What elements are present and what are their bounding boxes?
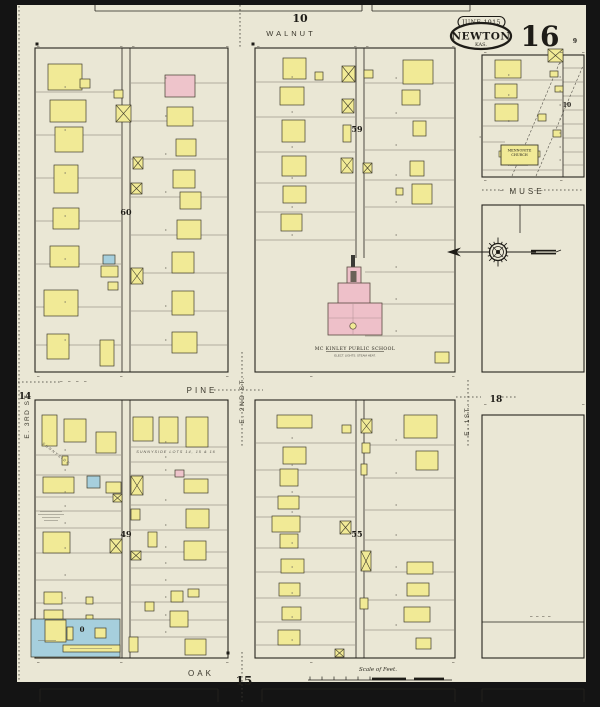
lot-number-mark — [165, 546, 166, 548]
building — [272, 516, 300, 532]
lot-number-mark — [396, 234, 397, 236]
lot-number-mark — [292, 234, 293, 236]
lot-number-mark — [560, 62, 561, 64]
dimension-tick — [68, 381, 71, 382]
lot-number-mark — [65, 491, 66, 493]
dimension-tick — [500, 190, 503, 191]
lot-number-mark — [292, 146, 293, 148]
dimension-tick — [257, 46, 260, 47]
lot-number-mark — [396, 594, 397, 596]
lot-number-mark — [560, 76, 561, 78]
building — [361, 464, 367, 475]
building — [413, 121, 426, 136]
building — [131, 509, 140, 520]
block-number: 9 — [573, 38, 577, 45]
lot-number-mark — [165, 456, 166, 458]
building — [108, 282, 118, 290]
building — [404, 415, 437, 438]
school-upper-wing — [338, 283, 370, 305]
lot-number-mark — [65, 339, 66, 341]
dimension-tick — [120, 46, 123, 47]
building — [282, 607, 301, 620]
building — [180, 192, 201, 209]
building — [101, 266, 118, 277]
street-pine: PINE — [187, 386, 218, 395]
building — [435, 352, 449, 363]
dimension-tick — [120, 376, 123, 377]
lot-number-mark — [165, 562, 166, 564]
lot-number-mark — [65, 301, 66, 303]
block-number: 55 — [351, 529, 362, 539]
lot-number-mark — [508, 120, 509, 122]
lot-number-mark — [165, 77, 166, 79]
lot-number-mark — [292, 111, 293, 113]
lot-number-mark — [396, 534, 397, 536]
building — [277, 415, 312, 428]
lot-number-mark — [480, 136, 481, 138]
lot-number-mark — [292, 616, 293, 618]
building — [402, 90, 420, 105]
building — [106, 482, 121, 493]
building — [396, 188, 403, 195]
dimension-tick — [310, 376, 313, 377]
building — [145, 602, 154, 611]
lot-number-mark — [165, 191, 166, 193]
building — [283, 447, 306, 464]
building — [53, 208, 79, 229]
building — [495, 84, 517, 98]
building — [362, 443, 370, 453]
street-walnut: WALNUT — [266, 29, 315, 38]
building — [407, 583, 429, 596]
dimension-tick — [484, 52, 487, 53]
lot-number-mark — [560, 146, 561, 148]
lot-number-mark — [165, 469, 166, 471]
dimension-tick — [84, 381, 87, 382]
dimension-tick — [452, 662, 455, 663]
building — [283, 58, 306, 79]
block-number: 10 — [563, 102, 571, 109]
lot-number-mark — [165, 115, 166, 117]
illegible-text-line — [70, 648, 112, 649]
lot-number-mark — [508, 94, 509, 96]
building — [282, 120, 305, 142]
dimension-tick — [60, 381, 63, 382]
lot-number-mark — [65, 129, 66, 131]
dimension-tick — [366, 46, 369, 47]
building — [280, 469, 298, 486]
church-label-2: CHURCH — [511, 153, 528, 157]
building — [43, 532, 70, 553]
building — [44, 592, 62, 604]
lot-number-mark — [396, 439, 397, 441]
lot-number-mark — [292, 592, 293, 594]
building — [50, 100, 86, 122]
lot-number-mark — [292, 206, 293, 208]
lot-number-mark — [396, 77, 397, 79]
building — [342, 425, 351, 433]
illegible-text-line — [38, 640, 56, 641]
street-e-2nd: E. 2ND ST. — [239, 376, 246, 423]
building — [407, 562, 433, 574]
building — [100, 340, 114, 366]
building — [167, 107, 193, 126]
street-oak: OAK — [188, 669, 214, 678]
lot-number-mark — [396, 174, 397, 176]
lot-number-mark — [165, 614, 166, 616]
lot-number-mark — [560, 159, 561, 161]
city-name: NEWTON — [452, 31, 511, 43]
lot-number-mark — [65, 215, 66, 217]
lot-number-mark — [165, 267, 166, 269]
lot-number-mark — [65, 505, 66, 507]
lot-number-mark — [396, 298, 397, 300]
building — [50, 246, 79, 267]
building — [172, 291, 194, 315]
addition-label: SUNNYSIDE LOTS 14, 15 & 16 — [136, 450, 216, 454]
building — [133, 417, 153, 441]
building — [96, 432, 116, 453]
lot-number-mark — [292, 76, 293, 78]
state-name: KAS. — [475, 42, 487, 48]
church-label-1: MENNONITE — [508, 149, 532, 153]
lot-number-mark — [65, 574, 66, 576]
building — [165, 75, 195, 97]
lot-number-mark — [396, 266, 397, 268]
building — [55, 127, 83, 152]
building — [184, 479, 208, 493]
building — [281, 214, 302, 231]
lot-number-mark — [396, 330, 397, 332]
lot-number-mark — [65, 258, 66, 260]
mennonite-church: MENNONITE CHURCH — [499, 145, 540, 165]
survey-dot — [252, 43, 255, 46]
dimension-tick — [37, 662, 40, 663]
dimension-tick — [484, 180, 487, 181]
building — [282, 156, 306, 176]
building — [278, 630, 300, 645]
lot-number-mark — [292, 437, 293, 439]
lot-number-mark — [292, 639, 293, 641]
lot-number-mark — [292, 491, 293, 493]
building — [177, 220, 201, 239]
survey-dot — [227, 652, 230, 655]
lot-number-mark — [165, 153, 166, 155]
lot-number-mark — [165, 305, 166, 307]
building — [550, 71, 558, 77]
building — [416, 638, 431, 649]
building — [148, 532, 157, 547]
building — [54, 165, 78, 193]
building — [159, 417, 178, 443]
lot-number-mark — [65, 172, 66, 174]
dimension-tick — [484, 404, 487, 405]
building — [176, 139, 196, 156]
building — [279, 583, 300, 596]
lot-number-mark — [65, 469, 66, 471]
dimension-tick — [452, 376, 455, 377]
building — [95, 628, 106, 638]
building — [412, 184, 432, 204]
dimension-tick — [542, 616, 545, 617]
building — [283, 186, 306, 203]
building — [67, 627, 73, 640]
illegible-text-line — [42, 517, 60, 518]
lot-number-mark — [560, 132, 561, 134]
building — [45, 620, 66, 642]
lot-number-mark — [165, 339, 166, 341]
lot-number-mark — [65, 449, 66, 451]
school-label: MC KINLEY PUBLIC SCHOOL — [315, 346, 395, 352]
block-number: 60 — [120, 207, 132, 217]
lot-number-mark — [396, 201, 397, 203]
dimension-tick — [560, 52, 563, 53]
illegible-text-line — [40, 511, 62, 512]
lot-number-mark — [560, 90, 561, 92]
dimension-tick — [548, 616, 551, 617]
building — [171, 591, 183, 602]
lot-number-mark — [65, 597, 66, 599]
block-number: 0 — [80, 625, 85, 634]
block-number: 18 — [490, 395, 503, 405]
building — [186, 509, 209, 528]
building — [360, 598, 368, 609]
sheet-number: 16 — [521, 20, 560, 53]
scale-label: Scale of Feet. — [359, 667, 397, 673]
dimension-tick — [530, 616, 533, 617]
lot-number-mark — [292, 177, 293, 179]
building — [403, 60, 433, 84]
street-e-1st: E. 1ST. — [464, 404, 471, 435]
lot-number-mark — [165, 524, 166, 526]
lot-number-mark — [292, 542, 293, 544]
building — [186, 417, 208, 447]
sanborn-map-sheet: 10596014184955151090 JUNE 1915 NEWTON KA… — [0, 0, 600, 707]
dimension-tick — [354, 46, 357, 47]
building — [416, 451, 438, 470]
building — [184, 541, 206, 560]
lot-number-mark — [65, 86, 66, 88]
street-e-3rd: E. 3RD ST. — [24, 391, 31, 438]
school-note: ELECT. LIGHTS. STEAM HEAT. — [334, 354, 376, 358]
dimension-tick — [226, 46, 229, 47]
building — [555, 86, 563, 92]
building — [172, 252, 194, 273]
building — [44, 290, 78, 316]
school-main-building — [328, 303, 382, 335]
dimension-tick — [582, 52, 585, 53]
lot-number-mark — [396, 566, 397, 568]
building — [404, 607, 430, 622]
lot-number-mark — [165, 499, 166, 501]
lot-number-mark — [396, 624, 397, 626]
building — [280, 534, 298, 548]
school-cistern — [350, 323, 356, 329]
dimension-tick — [76, 381, 79, 382]
dimension-tick — [452, 46, 455, 47]
dimension-tick — [226, 662, 229, 663]
lot-number-mark — [508, 74, 509, 76]
building — [410, 161, 424, 176]
lot-number-mark — [165, 631, 166, 633]
survey-dot — [36, 43, 39, 46]
building — [87, 476, 100, 488]
lot-number-mark — [292, 464, 293, 466]
building — [80, 79, 90, 88]
street-muse: MUSE — [509, 187, 544, 196]
building — [64, 419, 86, 442]
building — [86, 597, 93, 604]
dimension-tick — [132, 46, 135, 47]
lot-number-mark — [396, 112, 397, 114]
lot-number-mark — [396, 472, 397, 474]
lot-number-mark — [165, 441, 166, 443]
building — [185, 639, 206, 655]
dimension-tick — [560, 180, 563, 181]
building — [188, 589, 199, 597]
building — [343, 125, 351, 142]
lot-number-mark — [560, 118, 561, 120]
lot-number-mark — [292, 566, 293, 568]
building — [114, 90, 123, 98]
building — [173, 170, 195, 188]
building — [538, 114, 546, 121]
block-number: 59 — [351, 124, 363, 134]
lot-number-mark — [65, 547, 66, 549]
block-number: 49 — [120, 529, 132, 539]
lot-number-mark — [292, 511, 293, 513]
dimension-tick — [226, 376, 229, 377]
building — [43, 477, 74, 493]
dimension-tick — [37, 376, 40, 377]
lot-number-mark — [165, 579, 166, 581]
block-number: 10 — [292, 12, 308, 25]
building — [495, 104, 518, 121]
dimension-tick — [536, 616, 539, 617]
lot-number-mark — [165, 229, 166, 231]
building — [103, 255, 115, 264]
lot-number-mark — [165, 596, 166, 598]
lot-number-mark — [560, 104, 561, 106]
building — [172, 332, 197, 353]
building — [47, 334, 69, 359]
building — [278, 496, 299, 509]
building — [170, 611, 188, 627]
dimension-tick — [37, 46, 40, 47]
dimension-tick — [310, 662, 313, 663]
lot-number-mark — [396, 144, 397, 146]
illegible-text-line — [38, 514, 64, 515]
building — [315, 72, 323, 80]
dimension-tick — [582, 404, 585, 405]
block-number: 15 — [236, 674, 253, 688]
building — [175, 470, 184, 477]
dimension-tick — [120, 662, 123, 663]
illegible-text-line — [44, 520, 58, 521]
school-tower-door — [351, 271, 357, 282]
building — [364, 70, 373, 78]
lot-number-mark — [396, 504, 397, 506]
building — [129, 637, 138, 652]
building — [280, 87, 304, 105]
lot-number-mark — [65, 522, 66, 524]
